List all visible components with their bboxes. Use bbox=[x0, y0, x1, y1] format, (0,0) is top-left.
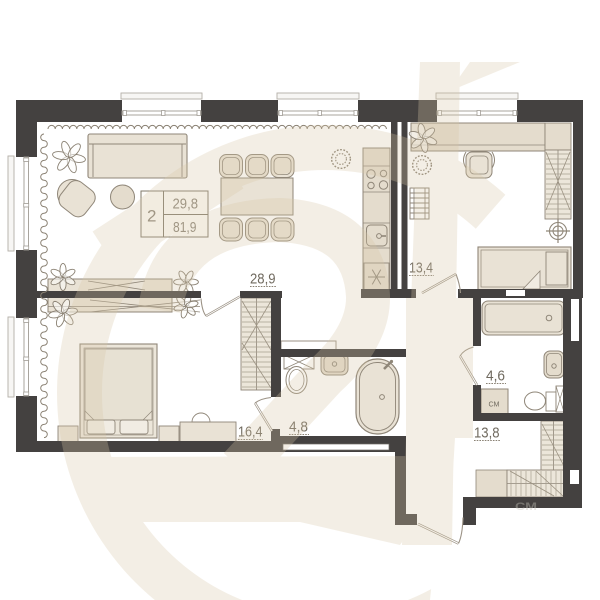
svg-text:СМ: СМ bbox=[489, 400, 500, 409]
svg-text:13,8: 13,8 bbox=[474, 426, 500, 442]
svg-text:СМ: СМ bbox=[515, 501, 537, 513]
svg-text:28,9: 28,9 bbox=[250, 272, 276, 288]
svg-text:4,6: 4,6 bbox=[486, 369, 505, 385]
